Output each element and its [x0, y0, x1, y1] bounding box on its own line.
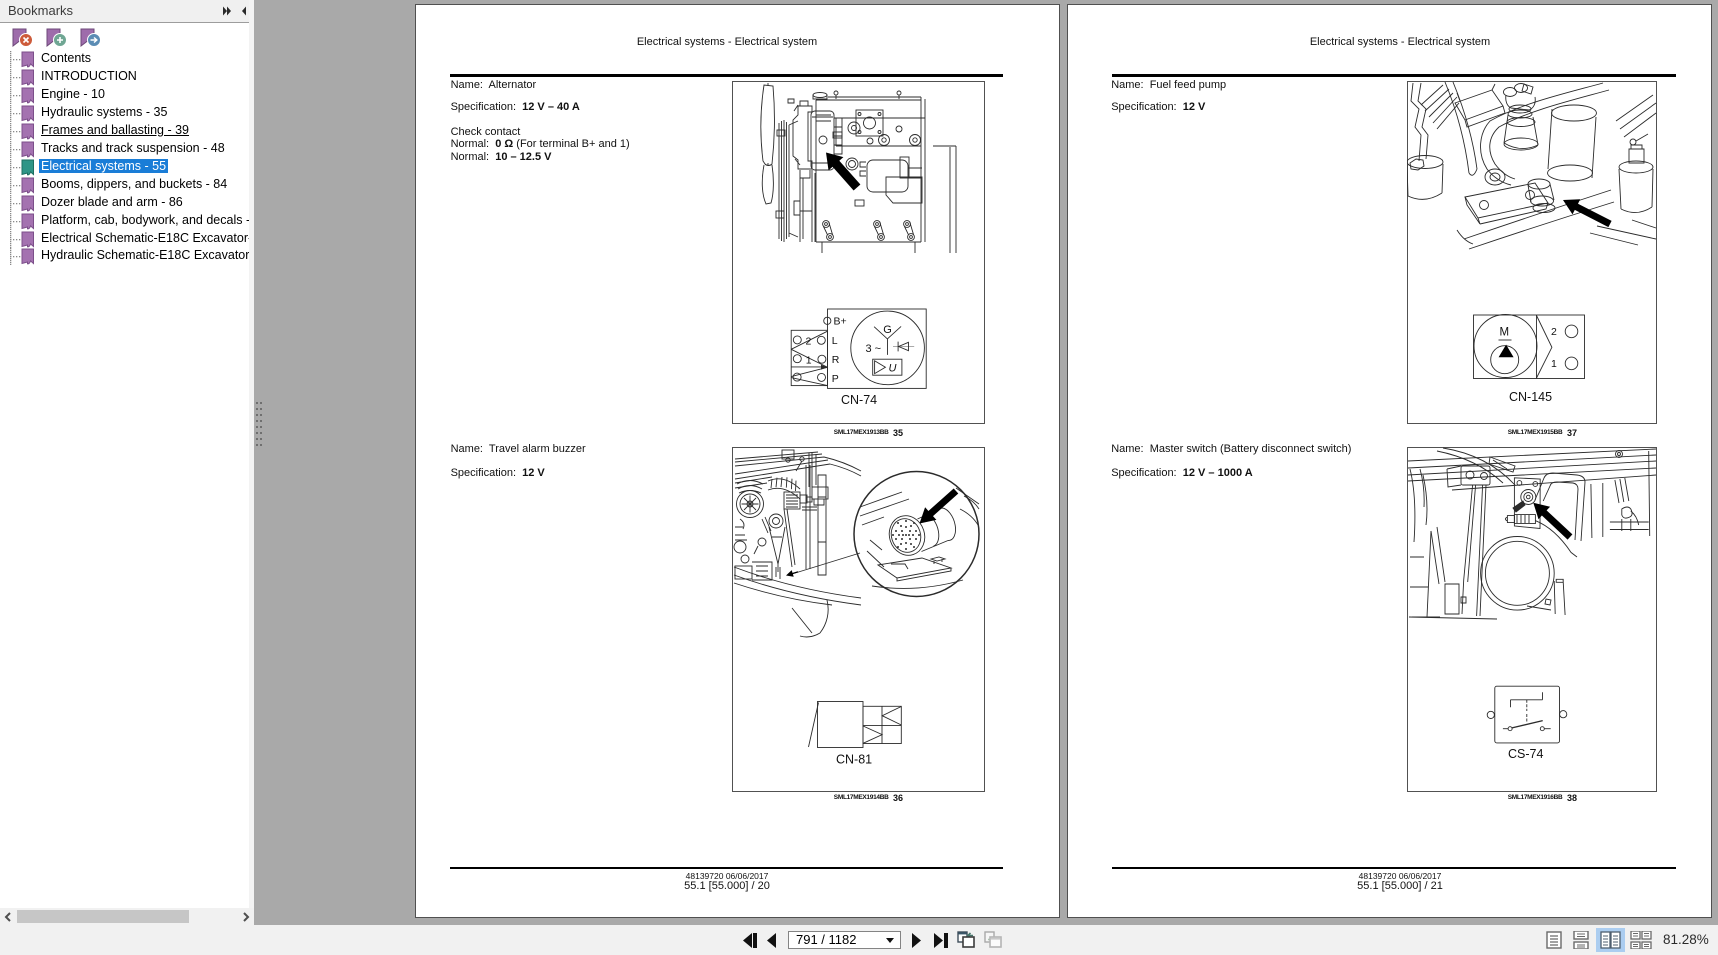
svg-text:CN-81: CN-81	[836, 752, 872, 766]
svg-text:G: G	[884, 324, 893, 336]
svg-text:1: 1	[806, 354, 812, 366]
svg-text:2: 2	[1551, 326, 1557, 338]
svg-text:U: U	[889, 363, 897, 375]
svg-text:R: R	[832, 354, 840, 366]
svg-text:3 ~: 3 ~	[866, 343, 882, 355]
svg-text:B+: B+	[834, 316, 847, 328]
svg-text:CS-74: CS-74	[1508, 747, 1543, 761]
svg-text:M: M	[1500, 327, 1510, 339]
svg-text:CN-145: CN-145	[1509, 390, 1552, 404]
svg-text:P: P	[832, 373, 839, 385]
svg-text:2: 2	[806, 336, 812, 348]
svg-text:CN-74: CN-74	[841, 393, 877, 407]
svg-text:L: L	[832, 335, 838, 347]
svg-text:1: 1	[1551, 358, 1557, 370]
